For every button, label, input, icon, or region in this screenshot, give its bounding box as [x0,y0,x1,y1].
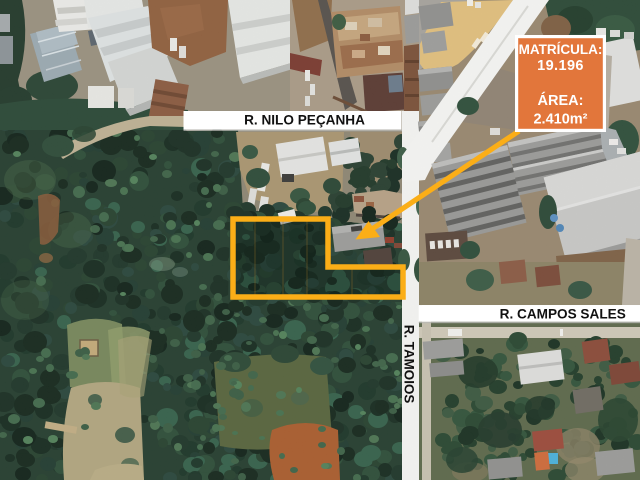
svg-text:R. TAMOIOS: R. TAMOIOS [402,325,417,404]
svg-text:R. NILO PEÇANHA: R. NILO PEÇANHA [244,113,365,128]
svg-text:R. CAMPOS SALES: R. CAMPOS SALES [500,306,626,321]
svg-text:19.196: 19.196 [537,58,584,74]
svg-text:MATRÍCULA:: MATRÍCULA: [519,42,603,57]
svg-text:2.410m²: 2.410m² [533,111,587,127]
svg-text:ÁREA:: ÁREA: [538,92,584,109]
